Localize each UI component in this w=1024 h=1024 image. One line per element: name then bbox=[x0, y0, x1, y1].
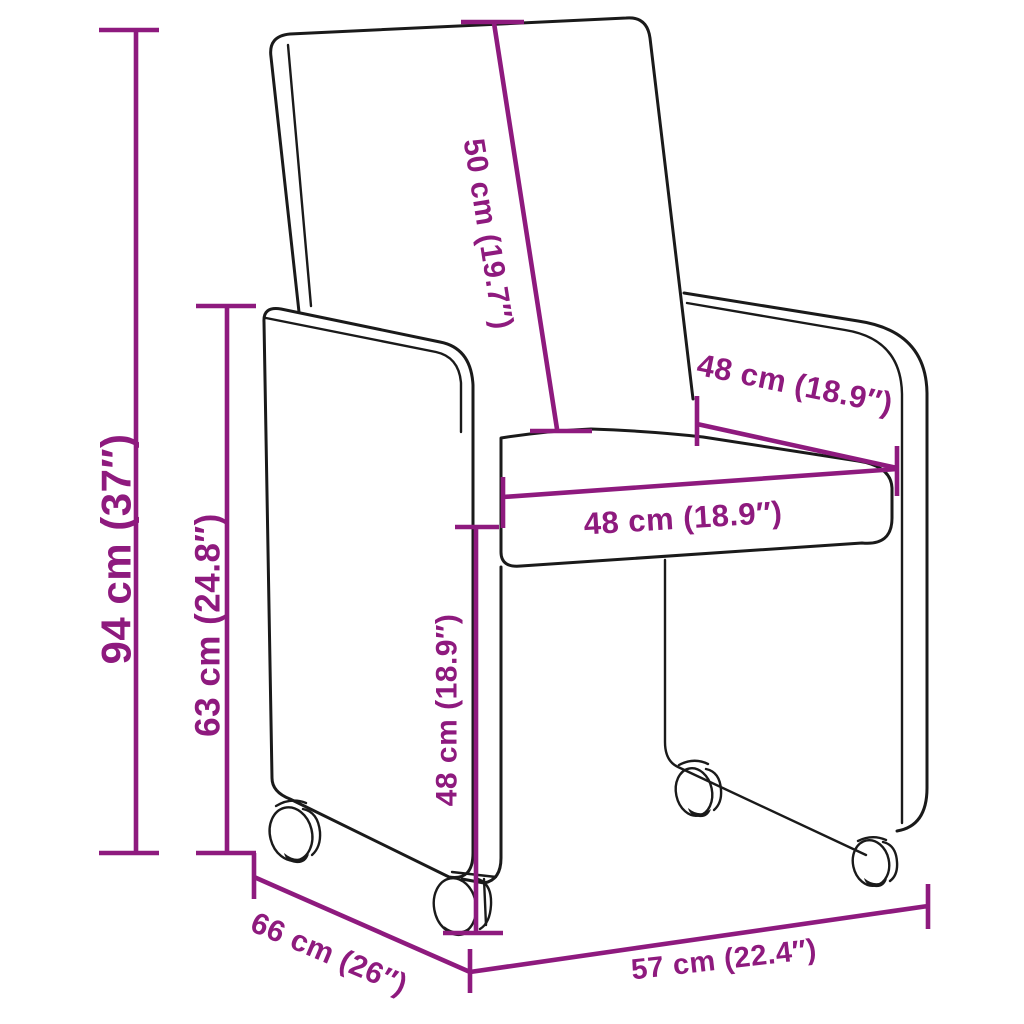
total-width-label: 57 cm (22.4″) bbox=[630, 934, 819, 987]
seat-cushion bbox=[501, 429, 892, 566]
chair-drawing bbox=[264, 18, 927, 937]
seat-width-label: 48 cm (18.9″) bbox=[694, 347, 896, 421]
caster-wheel-front-right bbox=[671, 761, 721, 819]
seat-depth-label: 48 cm (18.9″) bbox=[583, 494, 784, 541]
dimension-total-depth: 66 cm (26″) bbox=[246, 877, 470, 1002]
under-seat-edge bbox=[665, 560, 866, 855]
dimension-backrest-length: 50 cm (19.7″) bbox=[457, 22, 592, 431]
backrest-length-label: 50 cm (19.7″) bbox=[457, 136, 520, 331]
seat-height-label: 48 cm (18.9″) bbox=[431, 614, 464, 807]
left-panel-top-inner-edge bbox=[266, 318, 461, 432]
dimension-diagram-canvas: 94 cm (37″) 63 cm (24.8″) 50 cm (19.7″) … bbox=[0, 0, 1024, 1024]
dimension-seat-depth: 48 cm (18.9″) bbox=[503, 469, 897, 542]
dimension-total-height: 94 cm (37″) bbox=[93, 30, 160, 853]
dimension-arm-height: 63 cm (24.8″) bbox=[189, 306, 257, 899]
total-depth-label: 66 cm (26″) bbox=[246, 906, 412, 1001]
dimension-seat-width: 48 cm (18.9″) bbox=[694, 347, 897, 496]
total-height-label: 94 cm (37″) bbox=[93, 433, 140, 664]
dimension-total-width: 57 cm (22.4″) bbox=[470, 884, 928, 986]
caster-wheel-rear-right bbox=[849, 837, 897, 889]
chair-dimensions-diagram: 94 cm (37″) 63 cm (24.8″) 50 cm (19.7″) … bbox=[0, 0, 1024, 1024]
seat-front-face bbox=[462, 567, 501, 883]
backrest-side-edge bbox=[288, 45, 311, 306]
arm-height-label: 63 cm (24.8″) bbox=[189, 513, 228, 737]
